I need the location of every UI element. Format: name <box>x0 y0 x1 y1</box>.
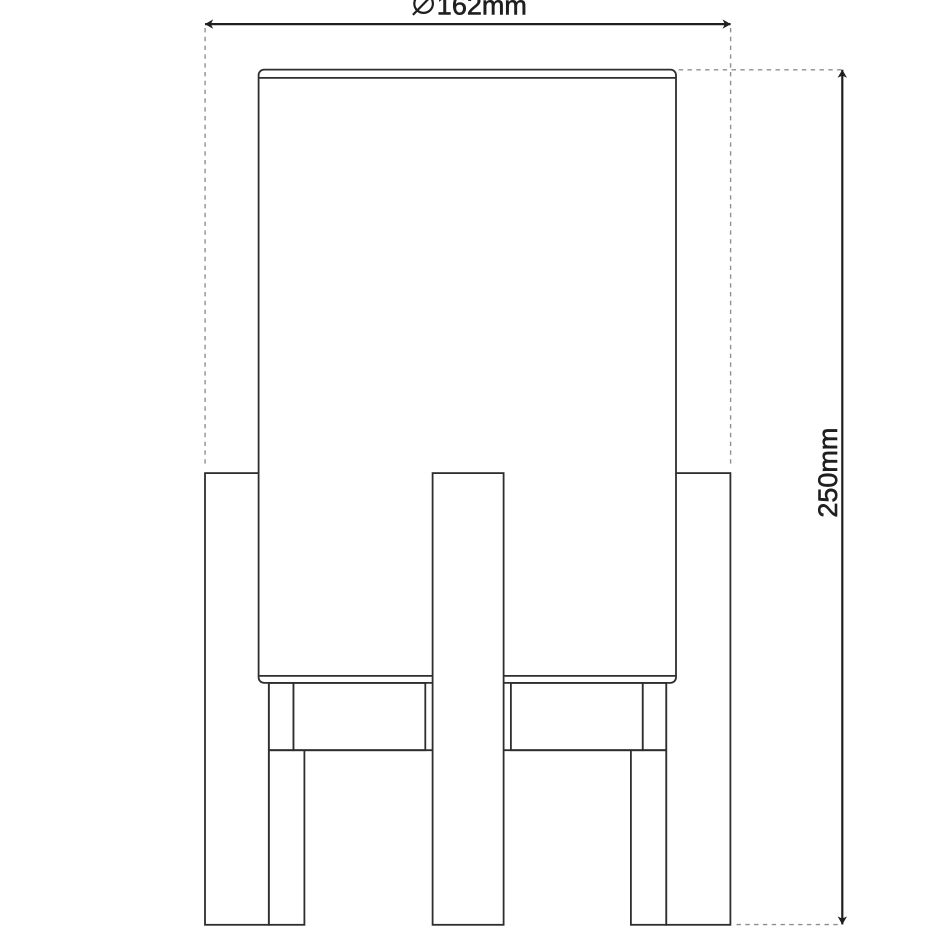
svg-text:162mm: 162mm <box>437 0 527 20</box>
svg-text:250mm: 250mm <box>813 428 843 518</box>
